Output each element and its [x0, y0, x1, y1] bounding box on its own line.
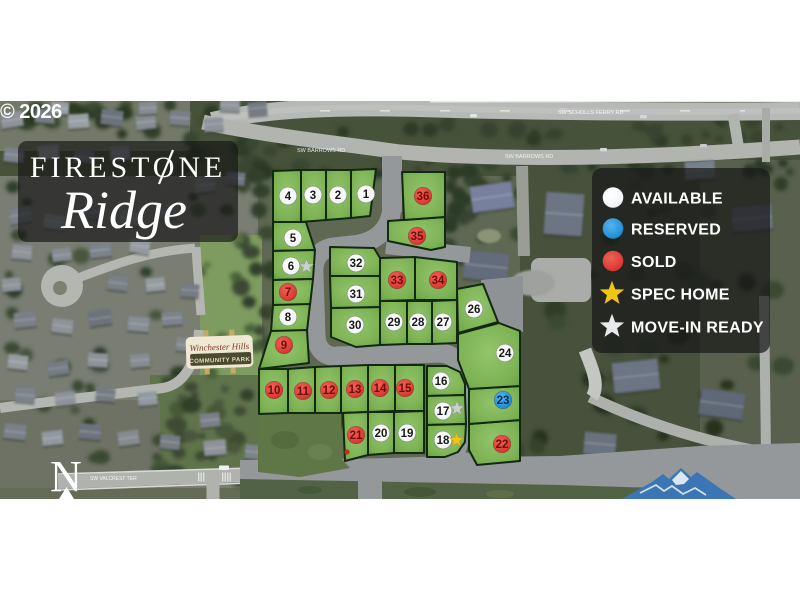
svg-text:27: 27	[437, 317, 450, 329]
svg-text:16: 16	[435, 376, 448, 388]
svg-text:13: 13	[349, 384, 362, 396]
svg-text:34: 34	[432, 275, 445, 287]
svg-text:AVAILABLE: AVAILABLE	[631, 191, 723, 208]
svg-text:15: 15	[399, 383, 412, 395]
svg-text:SW BARROWS RD: SW BARROWS RD	[505, 154, 553, 160]
svg-text:22: 22	[496, 439, 509, 451]
svg-text:31: 31	[350, 289, 363, 301]
svg-text:5: 5	[290, 233, 297, 245]
svg-text:17: 17	[437, 406, 450, 418]
svg-text:RESERVED: RESERVED	[631, 222, 721, 239]
svg-text:9: 9	[281, 340, 287, 352]
svg-text:23: 23	[497, 395, 510, 407]
svg-text:28: 28	[412, 317, 425, 329]
svg-text:6: 6	[288, 261, 294, 273]
svg-text:4: 4	[285, 191, 292, 203]
svg-text:18: 18	[437, 435, 450, 447]
svg-text:2: 2	[335, 190, 341, 202]
svg-text:SW VALCREST TER: SW VALCREST TER	[90, 476, 137, 482]
svg-text:26: 26	[468, 304, 481, 316]
svg-text:10: 10	[268, 385, 281, 397]
svg-text:SOLD: SOLD	[631, 254, 677, 271]
svg-text:3: 3	[310, 190, 316, 202]
svg-text:20: 20	[375, 428, 388, 440]
svg-text:35: 35	[411, 231, 424, 243]
svg-text:SPEC HOME: SPEC HOME	[631, 287, 730, 304]
svg-text:33: 33	[391, 275, 404, 287]
svg-text:Winchester Hills: Winchester Hills	[189, 341, 250, 353]
svg-text:Ridge: Ridge	[60, 180, 187, 240]
svg-text:32: 32	[350, 258, 363, 270]
svg-text:21: 21	[350, 430, 363, 442]
svg-text:29: 29	[388, 317, 401, 329]
svg-text:30: 30	[349, 320, 362, 332]
svg-text:14: 14	[374, 383, 387, 395]
svg-text:SW BARROWS RD: SW BARROWS RD	[297, 148, 345, 154]
svg-text:36: 36	[417, 191, 430, 203]
svg-text:© 2026: © 2026	[0, 101, 62, 123]
svg-text:8: 8	[285, 312, 292, 324]
svg-text:19: 19	[401, 428, 414, 440]
svg-text:11: 11	[297, 386, 310, 398]
svg-text:12: 12	[323, 385, 336, 397]
svg-text:7: 7	[285, 287, 291, 299]
svg-text:24: 24	[499, 348, 512, 360]
svg-text:1: 1	[363, 189, 370, 201]
svg-text:MOVE-IN READY: MOVE-IN READY	[631, 320, 764, 337]
svg-text:SW SCHOLLS FERRY RD: SW SCHOLLS FERRY RD	[558, 110, 624, 116]
